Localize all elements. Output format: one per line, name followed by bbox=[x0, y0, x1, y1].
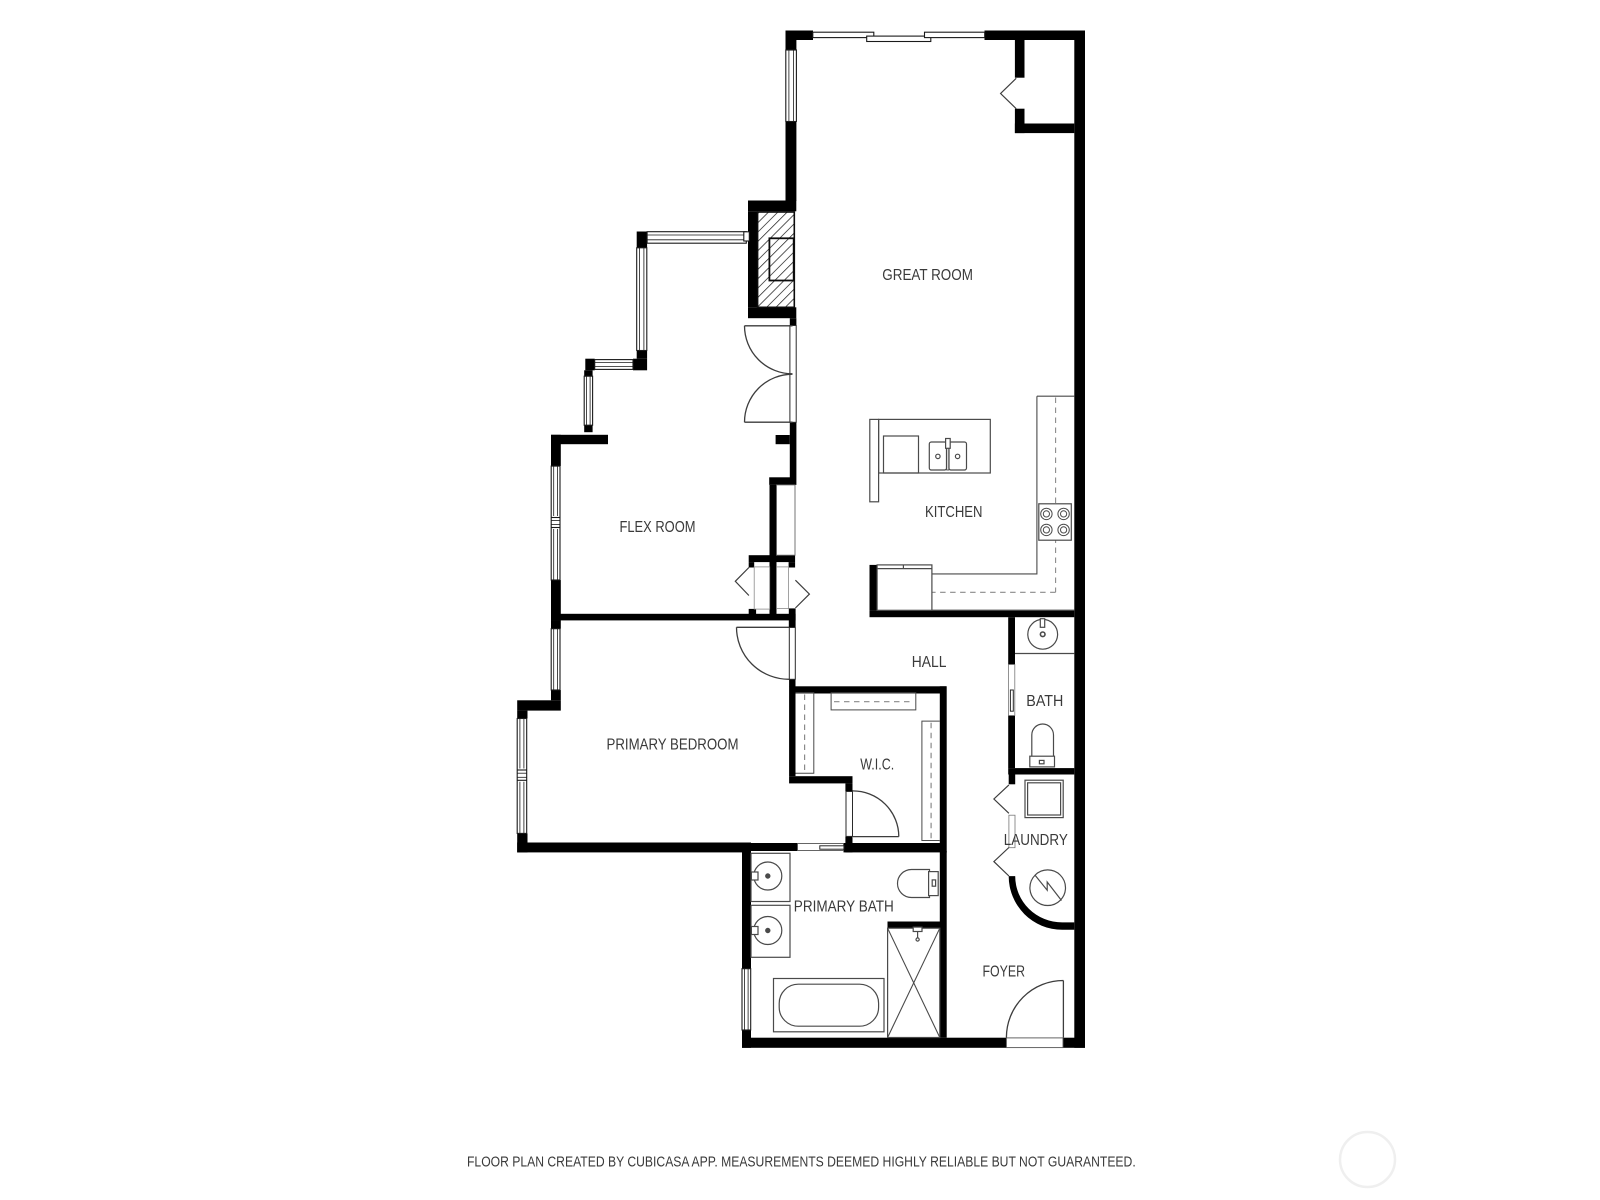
svg-text:BATH: BATH bbox=[1026, 693, 1063, 710]
svg-text:GREAT ROOM: GREAT ROOM bbox=[882, 267, 973, 284]
svg-text:W.I.C.: W.I.C. bbox=[860, 756, 894, 773]
svg-text:FLOOR PLAN CREATED BY CUBICASA: FLOOR PLAN CREATED BY CUBICASA APP. MEAS… bbox=[467, 1154, 1136, 1171]
svg-text:LAUNDRY: LAUNDRY bbox=[1004, 832, 1068, 849]
svg-text:PRIMARY BATH: PRIMARY BATH bbox=[794, 898, 894, 915]
svg-text:HALL: HALL bbox=[912, 654, 947, 671]
svg-text:FOYER: FOYER bbox=[983, 963, 1026, 980]
svg-text:KITCHEN: KITCHEN bbox=[925, 504, 983, 521]
svg-text:PRIMARY BEDROOM: PRIMARY BEDROOM bbox=[607, 737, 739, 754]
svg-text:FLEX ROOM: FLEX ROOM bbox=[620, 519, 696, 536]
